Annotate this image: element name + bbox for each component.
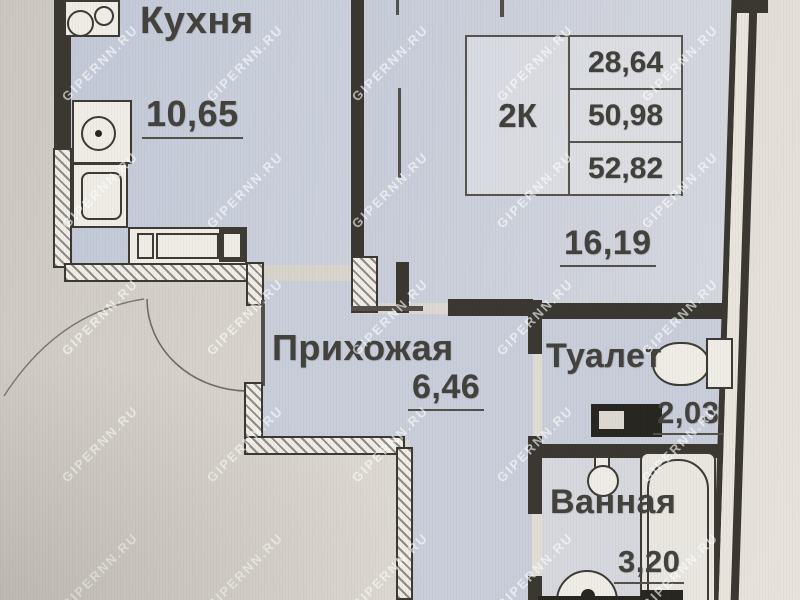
toilet-label: Туалет — [546, 339, 662, 373]
apartment-type-cell: 2К — [467, 37, 570, 194]
floor-plan-photo: 2К 28,64 50,98 52,82 Кухня 10,65 16,19 П… — [0, 0, 800, 600]
bathroom-area: 3,20 — [614, 546, 684, 584]
kitchen-living-wall — [351, 0, 364, 259]
toilet-left-wall-upper — [528, 300, 542, 354]
toilet-tank-icon — [706, 338, 733, 389]
watermark-text: GIPERNN.RU — [59, 276, 141, 358]
living-door-leaf-line — [398, 88, 401, 178]
watermark-text: GIPERNN.RU — [59, 530, 141, 600]
watermark-text: GIPERNN.RU — [204, 530, 286, 600]
counter-end-block — [219, 229, 245, 262]
living-room-area: 16,19 — [560, 226, 656, 267]
usable-area-value: 50,98 — [570, 90, 681, 143]
counter-segment-small — [137, 233, 154, 259]
living-door-jamb-left — [351, 256, 378, 313]
kitchen-cabinet-basin-icon — [81, 172, 122, 220]
entrance-door-arc-left — [4, 299, 144, 396]
top-tick-mark-1 — [396, 0, 399, 15]
stove-burner-small-icon — [94, 6, 114, 26]
toilet-top-wall — [533, 303, 742, 319]
toilet-cabinet-inset — [599, 411, 624, 429]
living-area-value: 28,64 — [570, 37, 681, 90]
kitchen-area: 10,65 — [142, 96, 243, 139]
apartment-info-table: 2К 28,64 50,98 52,82 — [465, 35, 683, 196]
top-tick-mark-2 — [500, 0, 504, 17]
living-door-sill-line — [351, 306, 423, 311]
entrance-door-arc — [147, 299, 247, 391]
hallway-left-edge-line — [261, 300, 265, 386]
watermark-text: GIPERNN.RU — [59, 403, 141, 485]
kitchen-left-wall-lower — [53, 148, 72, 268]
bathroom-label: Ванная — [550, 485, 676, 519]
kitchen-sink-drain-dot — [95, 130, 102, 137]
hallway-area: 6,46 — [408, 370, 484, 411]
bottom-edge-cut-line — [538, 596, 654, 600]
apartment-areas-column: 28,64 50,98 52,82 — [570, 37, 681, 194]
stove-burner-large-icon — [67, 10, 94, 37]
corridor-floor — [410, 438, 532, 600]
counter-segment-long — [156, 233, 219, 259]
total-area-value: 52,82 — [570, 143, 681, 194]
toilet-area: 2,03 — [653, 397, 723, 435]
hallway-bottom-wall — [244, 436, 405, 455]
top-right-wall-corner — [737, 0, 768, 13]
hallway-label: Прихожая — [272, 330, 454, 366]
kitchen-label: Кухня — [140, 2, 254, 40]
living-bottom-wall — [448, 299, 533, 316]
kitchen-bottom-wall — [64, 263, 248, 282]
corridor-left-wall — [396, 447, 413, 600]
